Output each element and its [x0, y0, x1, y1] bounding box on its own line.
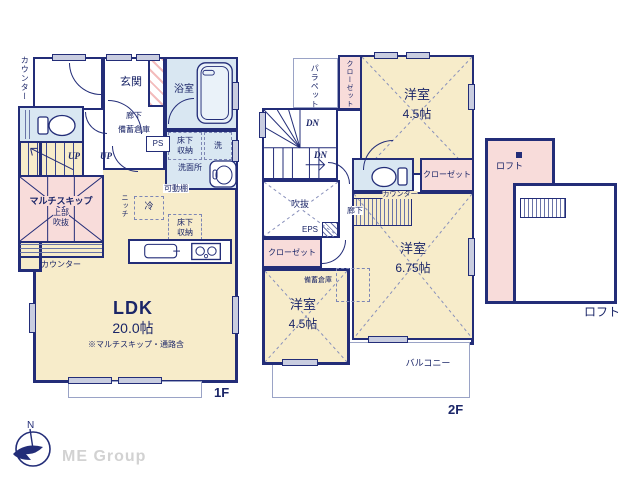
f1-up-label-a: UP: [68, 151, 80, 161]
f1-shelf-label: 可動棚: [163, 184, 189, 193]
f2-closet-top-label: クローゼット: [345, 60, 353, 108]
f2-room-bottom-label: 洋室: [290, 298, 316, 313]
f1-fridge-label: 冷: [144, 201, 153, 211]
f1-washroom-label: 洗面所: [178, 163, 202, 172]
f1-entrance-steps: [148, 57, 165, 107]
f1-ldk-size-label: 20.0帖: [112, 320, 153, 336]
f2-floor-label: 2F: [448, 403, 463, 418]
f2-room-bottom-size-label: 4.5帖: [289, 318, 318, 332]
f2-balcony-label: バルコニー: [406, 358, 451, 368]
f2-stairs-lines: [264, 110, 336, 178]
f1-counter-bottom-label: カウンター: [41, 260, 81, 269]
window: [118, 377, 162, 384]
window: [106, 54, 132, 61]
f2-storage-box: [336, 268, 370, 302]
f2-dn-label-b: DN: [314, 150, 327, 160]
f1-foyer-door-arc: [69, 63, 101, 95]
kitchen-sink-stove-icons: [130, 241, 230, 262]
f1-up-label-b: UP: [100, 151, 112, 161]
window: [368, 336, 408, 343]
window: [29, 303, 36, 333]
f1-multiskip-sub2: 吹抜: [53, 218, 69, 227]
loft-marker: [516, 152, 522, 158]
f1-multiskip-label: マルチスキップ: [29, 196, 92, 206]
toilet-icon: [36, 112, 78, 139]
f1-toilet-room: [18, 106, 84, 143]
brand-logo-text: ME Group: [62, 448, 146, 466]
window: [52, 54, 86, 61]
window: [232, 296, 239, 334]
f2-closet-right-label: クローゼット: [423, 170, 471, 179]
f1-kitchen-uf-label-2: 収納: [177, 228, 193, 237]
f2-parapet-label: パラペット: [310, 64, 319, 109]
f1-floor-label: 1F: [214, 386, 229, 401]
f1-storage-label: 備蓄倉庫: [118, 125, 150, 134]
f2-closet-left-label: クローゼット: [268, 248, 316, 257]
f1-washer-label: 洗: [214, 141, 222, 150]
window: [136, 54, 160, 61]
f2-storage-label: 備蓄倉庫: [304, 277, 332, 285]
f1-hall-label: 廊下: [126, 111, 142, 120]
f1-underfloor-label-1: 床下: [177, 136, 193, 145]
f2-dn-label-a: DN: [306, 118, 319, 128]
f1-kitchen-uf-label-1: 床下: [177, 218, 193, 227]
f1-ldk-label: LDK: [113, 298, 153, 319]
f1-ldk-note-label: ※マルチスキップ・通路含: [88, 340, 184, 349]
window: [232, 82, 239, 110]
sink-icon: [209, 160, 237, 188]
f2-eps-label: EPS: [302, 225, 318, 234]
compass-n-label: N: [27, 420, 34, 431]
compass-icon: N: [10, 420, 56, 472]
f1-toilet-counter: [22, 110, 33, 139]
loft-label-inside: ロフト: [496, 161, 523, 171]
compass-bird: [13, 446, 43, 460]
f1-multiskip-sub1: 上部: [53, 208, 69, 217]
f2-eps-box: [322, 222, 338, 238]
f2-room-top-size-label: 4.5帖: [403, 108, 432, 122]
window: [232, 140, 239, 162]
window: [468, 238, 475, 276]
f2-void-label: 吹抜: [291, 199, 309, 209]
f1-bath-label: 浴室: [174, 84, 194, 96]
f2-hall-label: 廊下: [347, 206, 363, 215]
loft-ladder: [520, 198, 566, 218]
window: [282, 359, 318, 366]
f1-counter-side-label: カウンター: [20, 56, 29, 101]
f1-genkan-label: 玄関: [120, 76, 142, 89]
window: [259, 112, 266, 138]
loft-room: [513, 183, 617, 304]
f2-counter-label: カウンター: [383, 191, 418, 199]
loft-label-outside: ロフト: [584, 306, 620, 320]
window: [468, 84, 475, 110]
floorplan-canvas: カウンター 玄関 浴室 廊下 備蓄倉庫 PS 床下 収納 洗 洗面所 可動棚 U…: [0, 0, 640, 480]
f1-kitchen-counter: [128, 239, 232, 264]
window: [406, 52, 430, 59]
f1-underfloor-label-2: 収納: [177, 146, 193, 155]
f2-room-right-label: 洋室: [400, 242, 426, 257]
f1-niche-label: ニッチ: [120, 194, 128, 218]
f1-ps-label: PS: [153, 139, 164, 148]
f2-room-top-label: 洋室: [404, 88, 430, 103]
window: [374, 52, 398, 59]
f2-room-right-size-label: 6.75帖: [395, 262, 430, 276]
f1-counter-hatch: [18, 241, 104, 258]
f1-foyer-room: [33, 57, 103, 110]
window: [68, 377, 112, 384]
f2-stairs: [262, 108, 338, 180]
